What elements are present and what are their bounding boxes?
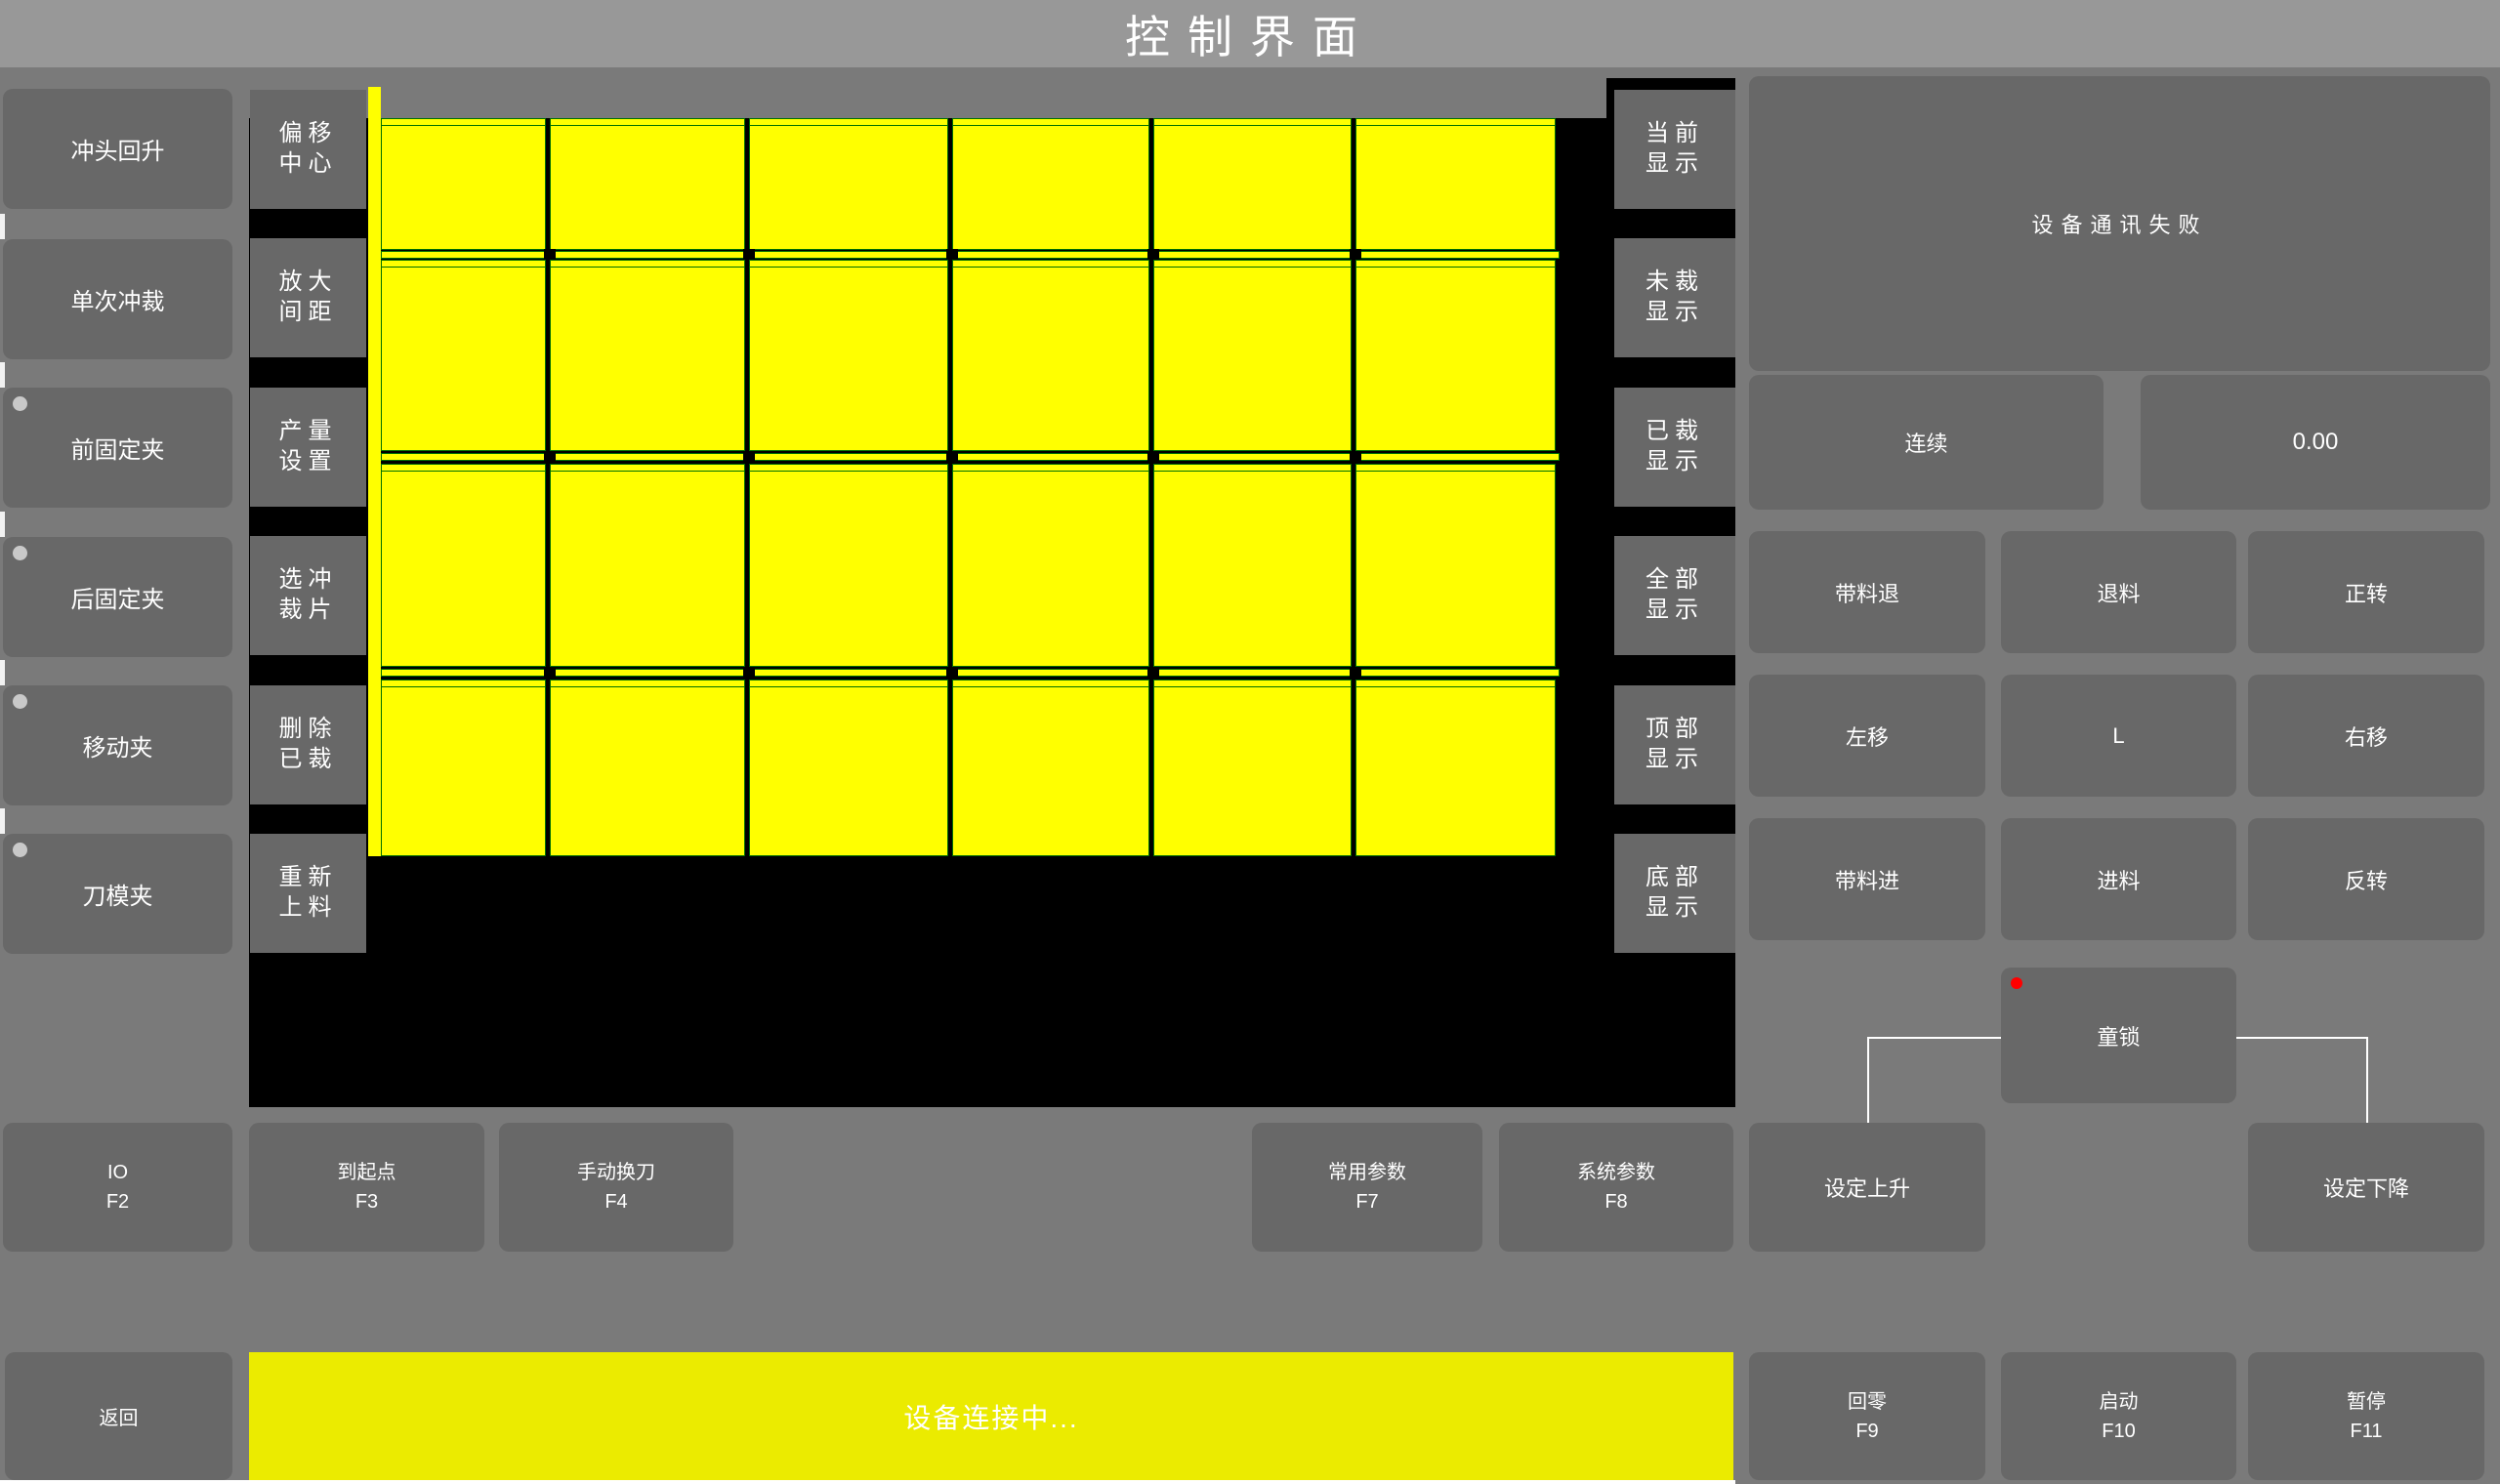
- sheet-piece[interactable]: [749, 680, 948, 856]
- sheet-piece[interactable]: [749, 118, 948, 250]
- fkey-label: F4: [604, 1187, 627, 1216]
- tool-offset-center[interactable]: 偏移 中心: [250, 90, 366, 209]
- fn-io-button[interactable]: IO F2: [3, 1123, 232, 1252]
- button-label: 手动换刀: [577, 1158, 655, 1187]
- fkey-label: F11: [2351, 1417, 2383, 1446]
- cut-intersection: [1147, 667, 1159, 679]
- button-label: 设定下降: [2323, 1172, 2409, 1203]
- button-label: 移动夹: [83, 728, 153, 763]
- sheet-piece[interactable]: [1153, 118, 1352, 250]
- button-label: 进料: [2097, 864, 2140, 895]
- edge-mark: [0, 214, 5, 239]
- button-label: 未裁: [1646, 268, 1704, 298]
- button-label: 当前: [1646, 119, 1704, 149]
- title-bar: 控制界面: [0, 0, 2500, 67]
- view-top[interactable]: 顶部 显示: [1614, 685, 1735, 804]
- waste-strip: [381, 669, 1560, 677]
- sheet-piece[interactable]: [550, 260, 745, 451]
- button-label: 带料退: [1835, 577, 1899, 608]
- alert-indicator-dot: [2011, 977, 2022, 989]
- cut-intersection: [743, 667, 755, 679]
- button-label: 显示: [1646, 298, 1704, 328]
- sheet-piece[interactable]: [381, 680, 546, 856]
- button-label: 前固定夹: [71, 431, 165, 465]
- sheet-row: [249, 464, 1735, 667]
- view-cut[interactable]: 已裁 显示: [1614, 388, 1735, 507]
- connection-status-bar: 设备连接中...: [249, 1352, 1733, 1480]
- view-bottom[interactable]: 底部 显示: [1614, 834, 1735, 953]
- sheet-piece[interactable]: [952, 260, 1149, 451]
- device-status-panel: 设备通讯失败: [1749, 76, 2490, 371]
- button-label: 显示: [1646, 149, 1704, 180]
- fn-set-rise-button[interactable]: 设定上升: [1749, 1123, 1985, 1252]
- sidebar-item-punch-rise[interactable]: 冲头回升: [3, 89, 232, 209]
- fn-set-fall-button[interactable]: 设定下降: [2248, 1123, 2484, 1252]
- bracket-line-left: [1867, 1037, 1869, 1125]
- button-label: 裁片: [279, 596, 338, 626]
- value-display: 0.00: [2141, 375, 2490, 510]
- button-label: 重新: [279, 863, 338, 893]
- sheet-piece[interactable]: [952, 464, 1149, 667]
- state-indicator-dot: [13, 546, 27, 560]
- sheet-piece[interactable]: [1355, 680, 1556, 856]
- tool-delete-cut[interactable]: 删除 已裁: [250, 685, 366, 804]
- button-label: 返回: [100, 1402, 139, 1430]
- fkey-label: F7: [1355, 1187, 1378, 1216]
- sheet-piece[interactable]: [952, 118, 1149, 250]
- button-label: 放大: [279, 268, 338, 298]
- tool-yield-settings[interactable]: 产量 设置: [250, 388, 366, 507]
- jog-move-left[interactable]: 左移: [1749, 675, 1985, 797]
- fn-manual-tool-change-button[interactable]: 手动换刀 F4: [499, 1123, 733, 1252]
- cut-intersection: [544, 451, 556, 463]
- button-label: 正转: [2345, 577, 2388, 608]
- button-label: 设置: [279, 447, 338, 477]
- sheet-piece[interactable]: [1355, 118, 1556, 250]
- sheet-row: [249, 260, 1735, 451]
- button-label: 已裁: [279, 745, 338, 775]
- jog-move-right[interactable]: 右移: [2248, 675, 2484, 797]
- view-all[interactable]: 全部 显示: [1614, 536, 1735, 655]
- tool-select-piece[interactable]: 选冲 裁片: [250, 536, 366, 655]
- cut-intersection: [946, 451, 958, 463]
- sidebar-item-single-punch[interactable]: 单次冲裁: [3, 239, 232, 359]
- tool-reload-material[interactable]: 重新 上料: [250, 834, 366, 953]
- sheet-piece[interactable]: [749, 260, 948, 451]
- button-label: 右移: [2345, 721, 2388, 752]
- canvas-top-margin: [249, 78, 1606, 118]
- button-label: 冲头回升: [71, 132, 165, 166]
- sheet-piece[interactable]: [1153, 260, 1352, 451]
- view-uncut[interactable]: 未裁 显示: [1614, 238, 1735, 357]
- button-label: 回零: [1848, 1387, 1887, 1417]
- pause-button[interactable]: 暂停 F11: [2248, 1352, 2484, 1480]
- bottom-divider: [0, 1480, 1735, 1484]
- button-label: 选冲: [279, 565, 338, 596]
- home-zero-button[interactable]: 回零 F9: [1749, 1352, 1985, 1480]
- fn-to-origin-button[interactable]: 到起点 F3: [249, 1123, 484, 1252]
- sheet-piece[interactable]: [381, 260, 546, 451]
- sidebar-item-front-clamp[interactable]: 前固定夹: [3, 388, 232, 508]
- cut-intersection: [946, 667, 958, 679]
- jog-center-L[interactable]: L: [2001, 675, 2236, 797]
- edge-mark: [0, 660, 5, 685]
- fkey-label: F9: [1855, 1417, 1878, 1446]
- sheet-piece[interactable]: [1153, 464, 1352, 667]
- button-label: 已裁: [1646, 417, 1704, 447]
- sheet-piece[interactable]: [381, 464, 546, 667]
- button-label: 设定上升: [1824, 1172, 1910, 1203]
- button-label: 暂停: [2347, 1387, 2386, 1417]
- button-label: 常用参数: [1328, 1158, 1406, 1187]
- fkey-label: F3: [355, 1187, 378, 1216]
- sheet-row: [249, 118, 1735, 250]
- button-label: 退料: [2097, 577, 2140, 608]
- cut-intersection: [743, 451, 755, 463]
- start-button[interactable]: 启动 F10: [2001, 1352, 2236, 1480]
- button-label: 刀模夹: [83, 877, 153, 911]
- button-label: 偏移: [279, 119, 338, 149]
- sheet-piece[interactable]: [381, 118, 546, 250]
- button-label: 删除: [279, 715, 338, 745]
- cutting-layout-canvas[interactable]: [249, 78, 1735, 1107]
- button-label: 单次冲裁: [71, 282, 165, 316]
- button-label: 全部: [1646, 565, 1704, 596]
- sidebar-item-die-clamp[interactable]: 刀模夹: [3, 834, 232, 954]
- fn-system-params-button[interactable]: 系统参数 F8: [1499, 1123, 1733, 1252]
- view-current[interactable]: 当前 显示: [1614, 90, 1735, 209]
- tool-enlarge-spacing[interactable]: 放大 间距: [250, 238, 366, 357]
- page-title: 控制界面: [1125, 2, 1375, 66]
- button-label: 显示: [1646, 745, 1704, 775]
- continuous-mode-button[interactable]: 连续: [1749, 375, 2104, 510]
- state-indicator-dot: [13, 843, 27, 857]
- jog-material-back[interactable]: 退料: [2001, 531, 2236, 653]
- button-label: 后固定夹: [71, 580, 165, 614]
- button-label: 中心: [279, 149, 338, 180]
- sheet-piece[interactable]: [550, 680, 745, 856]
- child-lock-button[interactable]: 童锁: [2001, 968, 2236, 1103]
- sidebar-item-moving-clamp[interactable]: 移动夹: [3, 685, 232, 805]
- connection-status-text: 设备连接中...: [903, 1397, 1078, 1436]
- button-label: IO: [107, 1158, 128, 1187]
- edge-mark: [0, 362, 5, 388]
- edge-mark: [0, 512, 5, 537]
- device-status-message: 设备通讯失败: [2031, 208, 2207, 239]
- sheet-piece[interactable]: [1153, 680, 1352, 856]
- jog-forward-rotate[interactable]: 正转: [2248, 531, 2484, 653]
- jog-material-in[interactable]: 进料: [2001, 818, 2236, 940]
- state-indicator-dot: [13, 396, 27, 411]
- button-label: 左移: [1846, 721, 1889, 752]
- sheet-piece[interactable]: [1355, 464, 1556, 667]
- sheet-piece[interactable]: [550, 118, 745, 250]
- button-label: L: [2112, 723, 2124, 749]
- button-label: 连续: [1904, 427, 1947, 458]
- button-label: 上料: [279, 893, 338, 924]
- cut-intersection: [1147, 451, 1159, 463]
- sheet-piece[interactable]: [550, 464, 745, 667]
- jog-feed-in-with-material[interactable]: 带料进: [1749, 818, 1985, 940]
- button-label: 反转: [2345, 864, 2388, 895]
- button-label: 显示: [1646, 596, 1704, 626]
- button-label: 到起点: [338, 1158, 396, 1187]
- jog-feed-back-with-material[interactable]: 带料退: [1749, 531, 1985, 653]
- state-indicator-dot: [13, 694, 27, 709]
- fkey-label: F8: [1604, 1187, 1627, 1216]
- button-label: 显示: [1646, 893, 1704, 924]
- button-label: 童锁: [2097, 1020, 2140, 1051]
- button-label: 显示: [1646, 447, 1704, 477]
- control-screen: 控制界面: [0, 0, 2500, 1484]
- button-label: 间距: [279, 298, 338, 328]
- cut-intersection: [1350, 667, 1361, 679]
- fkey-label: F2: [106, 1187, 129, 1216]
- sheet-piece[interactable]: [952, 680, 1149, 856]
- sidebar-item-rear-clamp[interactable]: 后固定夹: [3, 537, 232, 657]
- cut-intersection: [1350, 451, 1361, 463]
- value-readout: 0.00: [2293, 429, 2339, 456]
- button-label: 底部: [1646, 863, 1704, 893]
- button-label: 启动: [2100, 1387, 2139, 1417]
- bracket-line-right: [2366, 1037, 2368, 1125]
- waste-strip: [381, 251, 1560, 259]
- button-label: 顶部: [1646, 715, 1704, 745]
- fkey-label: F10: [2102, 1417, 2135, 1446]
- sheet-row: [249, 680, 1735, 856]
- button-label: 带料进: [1835, 864, 1899, 895]
- waste-strip: [381, 453, 1560, 461]
- button-label: 产量: [279, 417, 338, 447]
- sheet-piece[interactable]: [749, 464, 948, 667]
- sheet-piece[interactable]: [1355, 260, 1556, 451]
- cut-intersection: [544, 667, 556, 679]
- edge-mark: [0, 808, 5, 834]
- back-button[interactable]: 返回: [5, 1352, 232, 1480]
- fn-common-params-button[interactable]: 常用参数 F7: [1252, 1123, 1482, 1252]
- jog-reverse-rotate[interactable]: 反转: [2248, 818, 2484, 940]
- button-label: 系统参数: [1577, 1158, 1655, 1187]
